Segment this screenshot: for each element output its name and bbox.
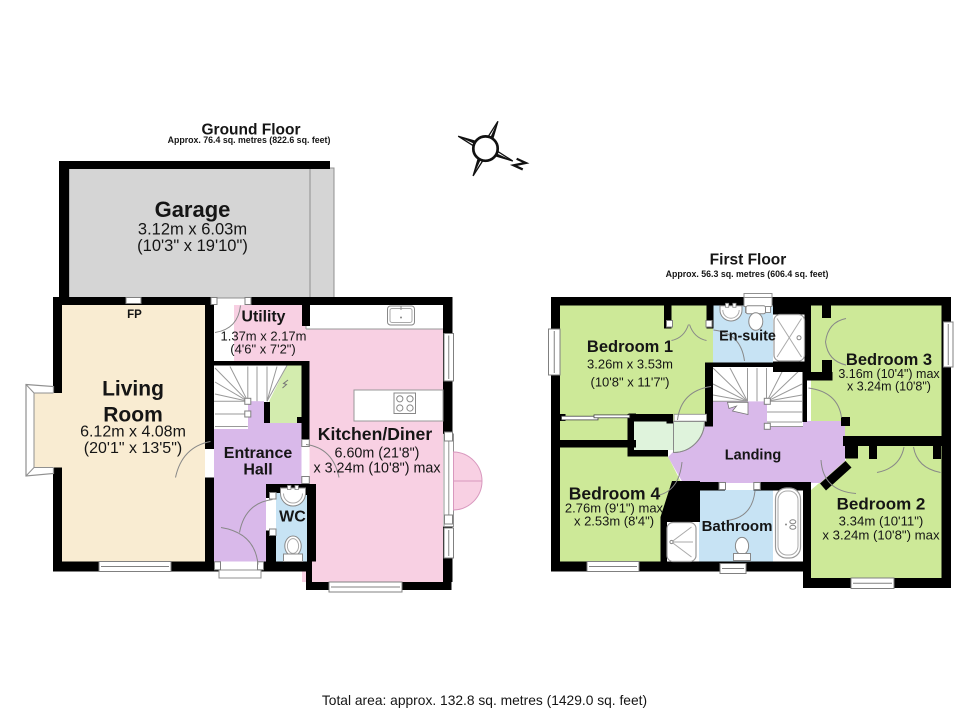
svg-text:6.60m (21'8"): 6.60m (21'8") xyxy=(335,445,420,461)
svg-text:Garage: Garage xyxy=(155,197,231,222)
svg-text:Entrance: Entrance xyxy=(224,445,293,462)
svg-text:Utility: Utility xyxy=(242,308,286,325)
svg-text:FP: FP xyxy=(127,309,142,321)
svg-text:First Floor: First Floor xyxy=(710,252,787,269)
svg-text:(10'8" x 11'7"): (10'8" x 11'7") xyxy=(591,375,670,390)
svg-text:Bedroom 2: Bedroom 2 xyxy=(837,495,926,514)
svg-text:3.34m (10'11"): 3.34m (10'11") xyxy=(839,514,924,529)
svg-text:Landing: Landing xyxy=(725,448,781,464)
svg-text:3.26m x 3.53m: 3.26m x 3.53m xyxy=(587,357,673,372)
svg-text:Approx. 76.4 sq. metres (822.6: Approx. 76.4 sq. metres (822.6 sq. feet) xyxy=(168,135,331,145)
svg-text:Approx. 56.3 sq. metres (606.4: Approx. 56.3 sq. metres (606.4 sq. feet) xyxy=(666,269,829,279)
svg-text:6.12m x 4.08m: 6.12m x 4.08m xyxy=(80,423,186,440)
svg-text:x 3.24m (10'8"): x 3.24m (10'8") xyxy=(847,380,931,394)
svg-text:3.12m x 6.03m: 3.12m x 6.03m xyxy=(138,220,247,238)
svg-text:Bathroom: Bathroom xyxy=(702,518,773,535)
svg-text:x 3.24m (10'8") max: x 3.24m (10'8") max xyxy=(314,460,441,476)
svg-text:(4'6" x 7'2"): (4'6" x 7'2") xyxy=(230,342,296,357)
svg-text:Kitchen/Diner: Kitchen/Diner xyxy=(318,424,433,444)
svg-text:x 2.53m (8'4"): x 2.53m (8'4") xyxy=(574,514,654,529)
svg-text:WC: WC xyxy=(279,509,306,526)
svg-text:Hall: Hall xyxy=(243,462,272,479)
svg-text:En-suite: En-suite xyxy=(719,328,776,344)
svg-text:(20'1" x 13'5"): (20'1" x 13'5") xyxy=(84,440,182,457)
svg-text:Bedroom 1: Bedroom 1 xyxy=(587,338,673,356)
svg-text:Living: Living xyxy=(102,378,164,401)
svg-text:(10'3" x 19'10"): (10'3" x 19'10") xyxy=(137,237,248,255)
svg-text:Total area: approx. 132.8 sq.: Total area: approx. 132.8 sq. metres (14… xyxy=(322,693,647,708)
svg-text:x 3.24m (10'8") max: x 3.24m (10'8") max xyxy=(822,527,940,542)
